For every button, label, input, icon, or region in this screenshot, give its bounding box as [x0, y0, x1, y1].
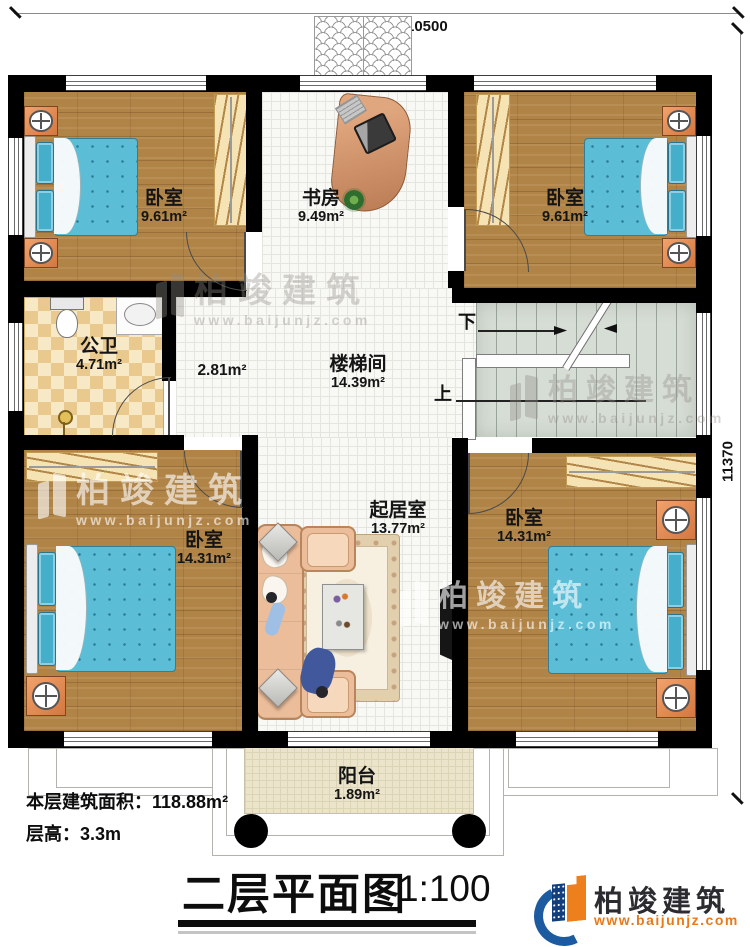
room-name: 楼梯间 — [298, 354, 418, 375]
room-area: 14.31m² — [144, 551, 264, 567]
title-underline — [178, 920, 476, 927]
room-label-bedroom-bl: 卧室 14.31m² — [144, 530, 264, 568]
lamp-icon — [29, 242, 53, 263]
window — [8, 323, 23, 411]
room-label-bedroom-tr: 卧室 9.61m² — [505, 188, 625, 226]
lamp-icon — [667, 242, 691, 263]
page-title: 二层平面图 — [182, 860, 407, 922]
bed-headboard — [26, 544, 38, 674]
bed-blanket — [640, 138, 667, 234]
balcony-door — [288, 731, 430, 747]
nightstand — [26, 676, 66, 716]
window — [300, 75, 426, 91]
room-label-hallway: 2.81m² — [162, 362, 282, 379]
window — [8, 138, 23, 235]
floor-plan: 10500 11370 — [0, 0, 750, 947]
bed-pillow — [668, 190, 686, 232]
lamp-icon — [667, 110, 691, 131]
dim-tick — [731, 22, 743, 34]
right-dimension-line — [740, 30, 741, 802]
floor-area-info: 本层建筑面积：118.88m² — [26, 788, 228, 814]
bed-pillow — [36, 190, 54, 232]
room-label-study: 书房 9.49m² — [261, 188, 381, 226]
shower-head-icon — [58, 410, 73, 425]
room-name: 卧室 — [464, 508, 584, 529]
person-head — [316, 686, 328, 698]
room-name: 卧室 — [505, 188, 625, 209]
drawing-scale: 1:100 — [398, 868, 491, 910]
brand-building-orange-icon — [567, 875, 586, 922]
room-label-balcony: 阳台 1.89m² — [297, 766, 417, 804]
wall-inner — [242, 435, 258, 731]
window-sill — [56, 748, 216, 788]
window — [64, 731, 212, 747]
window — [516, 731, 658, 747]
bed-pillow — [666, 614, 684, 670]
window — [696, 498, 711, 670]
room-area: 4.71m² — [39, 357, 159, 373]
room-area: 13.77m² — [338, 521, 458, 537]
room-label-bedroom-br: 卧室 14.31m² — [464, 508, 584, 546]
wall-inner — [24, 281, 246, 297]
door-leaf — [240, 451, 242, 507]
nightstand — [656, 500, 696, 540]
wall-inner — [452, 288, 696, 303]
bed-pillow — [38, 612, 56, 666]
bed-pillow — [666, 552, 684, 608]
room-label-stairwell: 楼梯间 14.39m² — [298, 354, 418, 392]
room-area: 14.31m² — [464, 529, 584, 545]
room-name: 公卫 — [39, 336, 159, 357]
bed-blanket — [636, 546, 667, 672]
room-area: 1.89m² — [297, 787, 417, 803]
door-leaf — [168, 377, 170, 435]
roof-tile-hatch — [314, 16, 412, 78]
bed-headboard — [24, 136, 36, 238]
wall-inner — [246, 92, 262, 232]
dim-tick — [731, 792, 743, 804]
balcony-column — [234, 814, 268, 848]
room-area: 9.61m² — [104, 209, 224, 225]
window-sill — [508, 748, 670, 788]
sink-icon — [124, 303, 156, 326]
coffee-table — [322, 584, 364, 650]
room-label-living-room: 起居室 13.77m² — [338, 500, 458, 538]
wall-inner — [448, 92, 464, 207]
wall-inner — [452, 438, 468, 731]
stair-down-line — [478, 330, 554, 332]
room-name: 书房 — [261, 188, 381, 209]
tv — [440, 584, 452, 660]
room-name: 起居室 — [338, 500, 458, 521]
room-area: 9.49m² — [261, 209, 381, 225]
stair-down-label: 下 — [458, 308, 476, 334]
lamp-icon — [662, 506, 691, 535]
wall-inner — [532, 438, 696, 453]
window — [66, 75, 206, 91]
nightstand — [24, 238, 58, 268]
room-area: 14.39m² — [298, 375, 418, 391]
nightstand — [662, 106, 696, 136]
wall-inner — [24, 435, 184, 450]
nightstand — [656, 678, 696, 718]
window — [696, 313, 711, 435]
room-name: 卧室 — [144, 530, 264, 551]
stair-railing-post — [462, 358, 476, 440]
closet — [566, 456, 698, 488]
room-label-bathroom: 公卫 4.71m² — [39, 336, 159, 374]
top-dimension-line — [14, 13, 740, 14]
closet — [26, 452, 158, 482]
lamp-icon — [32, 682, 61, 711]
person-head — [266, 592, 277, 603]
nightstand — [662, 238, 696, 268]
stairwell-floor — [476, 303, 696, 437]
brand-website: www.baijunjz.com — [594, 912, 739, 928]
stair-up-line — [456, 400, 646, 402]
brand-building-icon — [552, 883, 565, 921]
window — [474, 75, 656, 91]
title-underline-2 — [178, 931, 476, 934]
room-area: 9.61m² — [505, 209, 625, 225]
toilet-icon — [56, 309, 78, 338]
room-label-bedroom-tl: 卧室 9.61m² — [104, 188, 224, 226]
floor-height-info: 层高：3.3m — [26, 820, 121, 846]
door-leaf — [244, 232, 246, 290]
door-leaf — [468, 453, 470, 513]
nightstand — [24, 106, 58, 136]
bed-pillow — [668, 142, 686, 184]
wall-inner — [448, 271, 464, 288]
room-name: 阳台 — [297, 766, 417, 787]
window — [696, 136, 711, 236]
room-area: 2.81m² — [162, 362, 282, 379]
lamp-icon — [29, 110, 53, 131]
room-name: 卧室 — [104, 188, 224, 209]
top-dimension-label: 10500 — [406, 18, 448, 35]
bed-pillow — [36, 142, 54, 184]
stair-railing — [476, 354, 630, 368]
door-leaf — [464, 209, 466, 271]
stair-up-label: 上 — [434, 380, 452, 406]
lamp-icon — [662, 684, 691, 713]
right-dimension-label: 11370 — [720, 422, 737, 502]
balcony-column — [452, 814, 486, 848]
bed-pillow — [38, 552, 56, 606]
